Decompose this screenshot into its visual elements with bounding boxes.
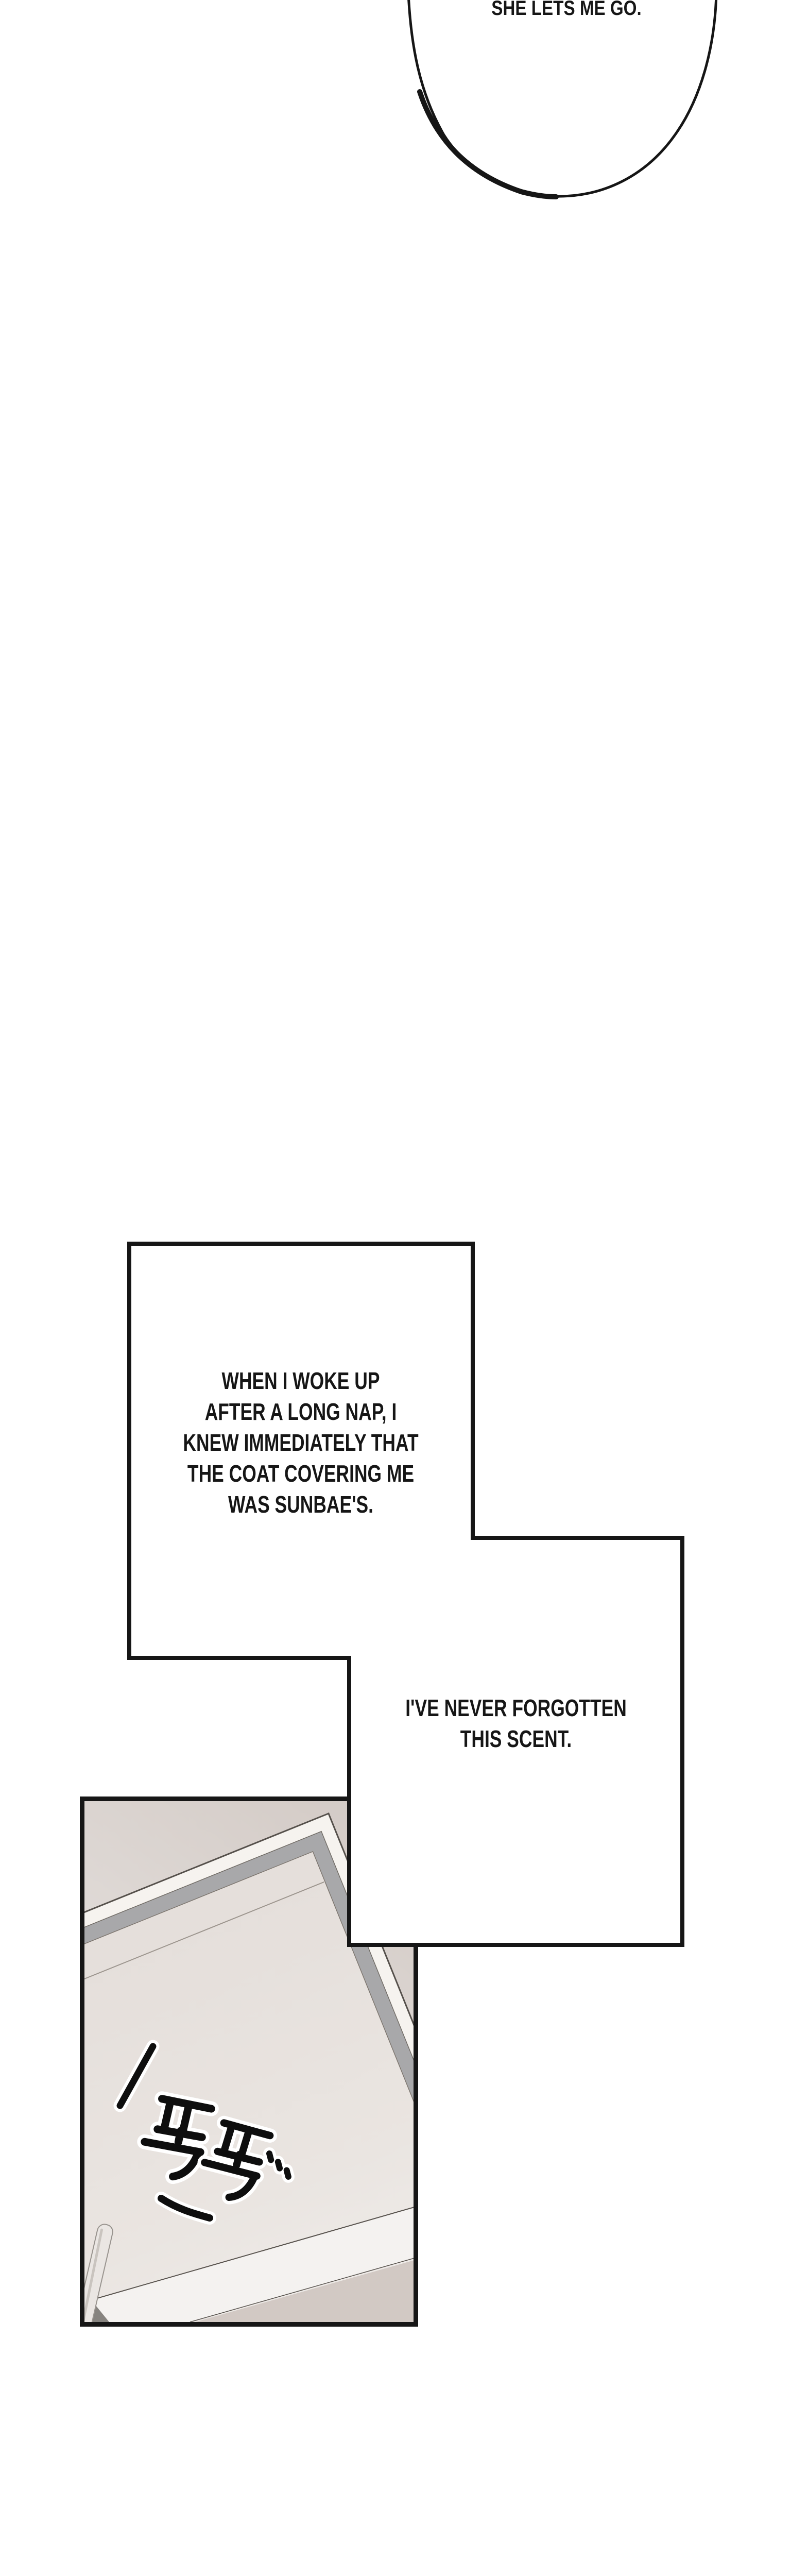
art-panel: 똑똑… [80,1797,418,2327]
caption-line: THIS SCENT. [405,1723,627,1754]
caption-line: THE COAT COVERING ME [183,1458,418,1489]
caption-line: WHEN I WOKE UP [183,1365,418,1396]
art-panel-drawing [84,1801,414,2322]
speech-bubble [408,0,716,196]
speech-bubble-text: SHE LETS ME GO. [491,0,641,19]
caption-line: AFTER A LONG NAP, I [183,1396,418,1427]
speech-bubble-thick-edge [420,92,556,197]
caption-line: KNEW IMMEDIATELY THAT [183,1427,418,1458]
caption-line: I'VE NEVER FORGOTTEN [405,1692,627,1723]
webtoon-page: { "page": { "kind": "webtoon comic page"… [0,0,791,2576]
caption-line: WAS SUNBAE'S. [183,1489,418,1520]
caption-box-1-text: WHEN I WOKE UP AFTER A LONG NAP, I KNEW … [183,1365,418,1520]
caption-box-2-text: I'VE NEVER FORGOTTEN THIS SCENT. [405,1692,627,1754]
